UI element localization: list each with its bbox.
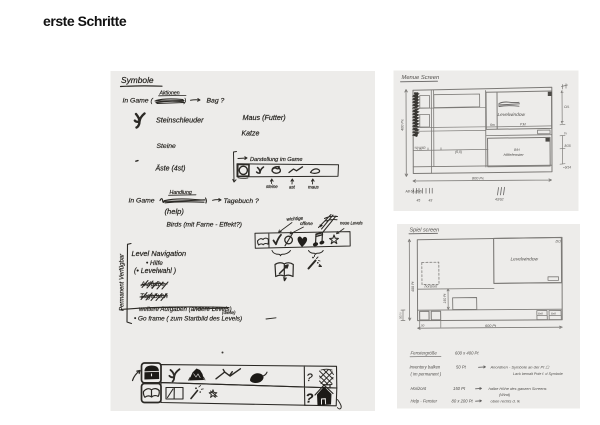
svg-text:Horizont: Horizont: [411, 386, 427, 391]
svg-text:Darstellung im Game: Darstellung im Game: [250, 157, 303, 163]
svg-text:45: 45: [417, 199, 421, 203]
svg-text:150 Pt: 150 Pt: [443, 293, 447, 304]
svg-text:Steine: Steine: [157, 143, 176, 150]
svg-text:43: 43: [429, 199, 433, 203]
svg-text:600 Pt: 600 Pt: [485, 324, 497, 328]
svg-text:horizont: horizont: [425, 285, 439, 289]
svg-text:Menue Screen: Menue Screen: [402, 75, 440, 81]
svg-text:⅙|⅙|60: ⅙|⅙|60: [414, 146, 426, 150]
svg-text:43/92: 43/92: [495, 198, 504, 202]
svg-text:⅔: ⅔: [564, 132, 567, 136]
svg-text:?: ?: [306, 391, 314, 406]
svg-text:≈9/14: ≈9/14: [563, 166, 571, 170]
svg-text:(• Levelwahl ): (• Levelwahl ): [134, 268, 176, 275]
svg-text:( im permanent ): ( im permanent ): [411, 372, 442, 377]
svg-text:In Game (: In Game (: [123, 98, 154, 105]
svg-text:6x6: 6x6: [538, 312, 543, 316]
svg-text:Birds (mit Farne - Effekt?): Birds (mit Farne - Effekt?): [167, 222, 242, 229]
svg-text:maus: maus: [308, 185, 320, 190]
svg-text:ast: ast: [289, 185, 296, 190]
svg-text:Äste (4st): Äste (4st): [155, 165, 186, 173]
svg-text:P.M: P.M: [520, 123, 526, 127]
svg-text:Katze: Katze: [242, 131, 260, 138]
svg-text:• Hilfe: • Hilfe: [146, 260, 163, 267]
svg-text:AB 6A (6M): AB 6A (6M): [405, 190, 422, 194]
svg-text:Hilfefenster: Hilfefenster: [504, 152, 525, 157]
svg-text:50,½: 50,½: [399, 312, 403, 319]
svg-text:Tagebuch ?: Tagebuch ?: [224, 198, 259, 205]
svg-text:halbe Höhe des ganzen Screens: halbe Höhe des ganzen Screens: [489, 386, 547, 391]
svg-text:Inventory balken: Inventory balken: [410, 365, 441, 370]
svg-text:steine: steine: [266, 184, 278, 189]
svg-text:Steinschleuder: Steinschleuder: [156, 116, 204, 125]
svg-text:50 Pt: 50 Pt: [456, 365, 467, 370]
svg-text:(Wind): (Wind): [499, 393, 511, 397]
svg-text:80 x 200 Pt: 80 x 200 Pt: [452, 399, 474, 404]
svg-text:In Game: In Game: [129, 198, 155, 205]
svg-text:50: 50: [421, 324, 425, 328]
svg-text:400 Px: 400 Px: [401, 118, 405, 131]
svg-text:Maus (Futter): Maus (Futter): [243, 113, 286, 122]
svg-text:6x6: 6x6: [551, 312, 556, 316]
svg-text:Levelwindow: Levelwindow: [511, 257, 539, 263]
svg-text:(help): (help): [165, 207, 185, 216]
svg-text:DO: DO: [556, 240, 562, 244]
svg-text:O/L: O/L: [564, 105, 570, 109]
svg-text:neue Levels: neue Levels: [340, 221, 363, 226]
svg-text:8/15: 8/15: [565, 144, 571, 148]
svg-text:(diese): (diese): [222, 310, 236, 315]
svg-text:800 Px: 800 Px: [472, 177, 485, 181]
svg-text:Symbole: Symbole: [121, 75, 154, 85]
svg-text:150 Pt: 150 Pt: [453, 386, 466, 391]
svg-text:Fenstergröße: Fenstergröße: [411, 351, 438, 356]
svg-text:oben rechts d. lk: oben rechts d. lk: [491, 398, 521, 403]
svg-text:offene: offene: [300, 221, 313, 226]
svg-text:Help - Fenster: Help - Fenster: [411, 399, 438, 404]
svg-text:Permanent Verfügbar: Permanent Verfügbar: [120, 253, 126, 311]
svg-text:6m: 6m: [490, 123, 495, 127]
svg-text:Anordnen - Symbole an der Pt ▢: Anordnen - Symbole an der Pt ▢: [490, 364, 551, 369]
svg-text:Lack bemalt Pole f. d Symbole: Lack bemalt Pole f. d Symbole: [513, 372, 563, 376]
svg-text:Levelwindow: Levelwindow: [498, 112, 526, 118]
svg-text:600 x 400 Pt: 600 x 400 Pt: [455, 351, 479, 356]
svg-text:?: ?: [307, 372, 314, 384]
svg-text:Spiel screen: Spiel screen: [410, 228, 440, 234]
svg-text:• Go frame ( zum Startbild de: • Go frame ( zum Startbild des Levels): [134, 316, 242, 323]
svg-text:Bag ?: Bag ?: [207, 98, 225, 105]
svg-text:): ): [183, 98, 186, 105]
svg-text:400 Pt: 400 Pt: [411, 281, 415, 292]
svg-text:Level Navigation: Level Navigation: [132, 249, 187, 258]
svg-text:(6,0): (6,0): [455, 150, 462, 154]
